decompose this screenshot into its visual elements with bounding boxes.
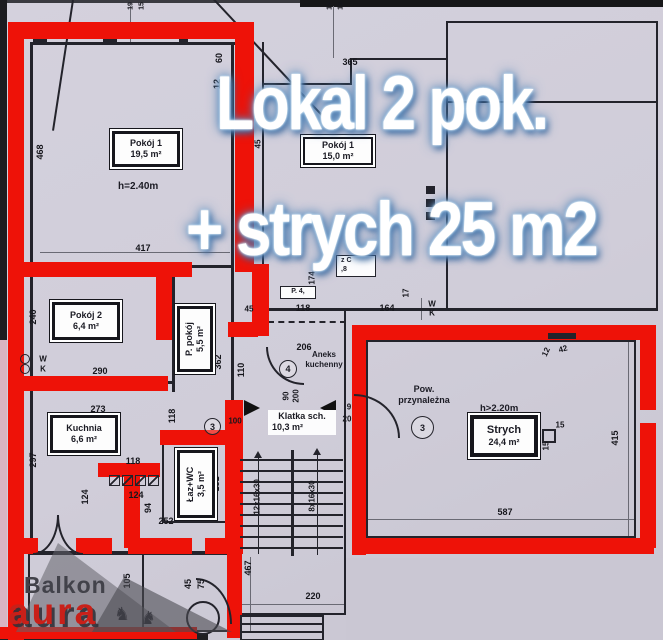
room-area: 19,5 m² bbox=[130, 149, 161, 160]
pow-przynalezna-label: Pow. przynależna bbox=[392, 384, 456, 406]
dimension-label: 240 bbox=[28, 309, 38, 324]
aneks-label: Aneks kuchenny bbox=[298, 350, 350, 369]
dimension-label: 124 bbox=[80, 489, 90, 504]
dimension-label: 90 bbox=[282, 392, 291, 401]
appliance-symbol-icon bbox=[135, 475, 146, 486]
dimension-label: 15 bbox=[338, 2, 345, 10]
strych-height-note: h>2.20m bbox=[480, 403, 518, 414]
dimension-label: 297 bbox=[28, 452, 38, 467]
dimension-label: 220 bbox=[305, 591, 320, 601]
dimension-label: 15 bbox=[556, 421, 565, 430]
room-height-note: h=2.40m bbox=[118, 181, 158, 193]
room-area: 6,6 m² bbox=[71, 434, 97, 445]
dimension-label: 15 bbox=[139, 2, 146, 10]
roof-slope-line bbox=[52, 0, 73, 131]
stair-arrow-icon bbox=[254, 451, 262, 458]
room-label-klatka: Klatka sch. 10,3 m² bbox=[268, 410, 336, 435]
floor-plan-photo: 1915191560123654546841724029027329711836… bbox=[0, 0, 663, 640]
dimension-label: 45 bbox=[245, 305, 254, 314]
dimension-label: 290 bbox=[92, 366, 107, 376]
room-name: Kuchnia bbox=[66, 423, 102, 434]
dimension-label: 200 bbox=[292, 389, 301, 402]
watermark-triangle bbox=[92, 577, 232, 632]
dimension-label: 164 bbox=[379, 303, 394, 313]
room-label-pokoj2: Pokój 2 6,4 m² bbox=[52, 302, 120, 340]
dimension-label: 124 bbox=[128, 490, 143, 500]
room-name: Łaz+WC bbox=[185, 466, 196, 501]
room-area: 15,0 m² bbox=[322, 151, 353, 162]
dimension-label: 19 bbox=[128, 2, 135, 10]
photo-edge-top-left bbox=[0, 0, 300, 3]
photo-background-lower bbox=[346, 558, 663, 640]
photo-edge-left-pink bbox=[0, 340, 7, 640]
vent-symbol-icon bbox=[20, 364, 30, 374]
dimension-label: 118 bbox=[296, 303, 311, 313]
dimension-label: 110 bbox=[236, 363, 246, 378]
dimension-label: 20 bbox=[343, 415, 352, 424]
dimension-label: 174 bbox=[308, 271, 317, 284]
dimension-label: 19 bbox=[327, 2, 334, 10]
pow-circle-number: 3 bbox=[411, 416, 434, 439]
room-area: 5,5 m² bbox=[195, 326, 206, 352]
room-name: Pokój 1 bbox=[130, 138, 162, 149]
room-name: Klatka sch. bbox=[272, 411, 332, 422]
dimension-label: 587 bbox=[497, 507, 512, 517]
dimension-label: 17 bbox=[402, 289, 411, 298]
room-label-pokoj1-left: Pokój 1 19,5 m² bbox=[112, 131, 180, 167]
vent-symbol-icon bbox=[20, 354, 30, 364]
dimension-label: 362 bbox=[213, 354, 223, 369]
dimension-label: 417 bbox=[135, 243, 150, 253]
room-area: 6,4 m² bbox=[73, 321, 99, 332]
entrance-steps bbox=[240, 615, 324, 640]
advert-title-line1: Lokal 2 pok. bbox=[216, 60, 547, 147]
room-label-strych: Strych 24,4 m² bbox=[470, 415, 538, 457]
room-area: 10,3 m² bbox=[272, 422, 332, 433]
dimension-label: 467 bbox=[243, 560, 253, 575]
watermark-aura-logo: aura bbox=[8, 591, 98, 633]
room-name: Strych bbox=[487, 424, 521, 437]
dimension-label: 94 bbox=[143, 503, 153, 513]
dimension-label: K bbox=[40, 365, 46, 374]
dimension-label: K bbox=[429, 309, 435, 318]
dimension-label: 118 bbox=[126, 456, 141, 466]
advert-title-line2: + strych 25 m2 bbox=[186, 186, 596, 273]
room-name: Pokój 2 bbox=[70, 310, 102, 321]
hall-circle-number: 3 bbox=[204, 418, 221, 435]
photo-edge-top bbox=[300, 0, 663, 7]
dimension-label: 273 bbox=[90, 404, 105, 414]
dimension-label: W bbox=[428, 300, 436, 309]
dimension-label: W bbox=[39, 355, 47, 364]
dimension-label: 15 bbox=[542, 442, 551, 451]
dimension-label: 100 bbox=[228, 417, 241, 426]
appliance-symbol-icon bbox=[122, 475, 133, 486]
stair-arrow-icon bbox=[313, 448, 321, 455]
dimension-label: 118 bbox=[167, 409, 177, 424]
goat-silhouette-icon: ♞ bbox=[140, 608, 156, 629]
appliance-symbol-icon bbox=[109, 475, 120, 486]
dimension-label: 9 bbox=[347, 403, 351, 412]
dimension-label: 468 bbox=[35, 144, 45, 159]
dimension-label: 12x16x30 bbox=[253, 479, 262, 515]
room-area: 3,5 m² bbox=[196, 471, 207, 497]
room-name: P. pokój bbox=[184, 322, 195, 356]
dimension-label: 415 bbox=[610, 430, 620, 445]
aneks-circle-number: 4 bbox=[279, 360, 297, 378]
partial-room-label: P. 4, bbox=[280, 286, 316, 299]
window-notch bbox=[548, 333, 576, 339]
room-label-p-pokoj: P. pokój 5,5 m² bbox=[177, 306, 213, 372]
dimension-label: 252 bbox=[158, 516, 173, 526]
appliance-symbol-icon bbox=[148, 475, 159, 486]
goat-silhouette-icon: ♞ bbox=[114, 604, 130, 625]
dashed-kneewall-line bbox=[268, 321, 346, 323]
dimension-label: 8x16x30 bbox=[308, 480, 317, 511]
room-area: 24,4 m² bbox=[488, 437, 519, 448]
room-label-kuchnia: Kuchnia 6,6 m² bbox=[50, 415, 118, 453]
section-arrow-icon bbox=[244, 400, 260, 416]
room-label-laz-wc: Łaz+WC 3,5 m² bbox=[177, 450, 215, 518]
